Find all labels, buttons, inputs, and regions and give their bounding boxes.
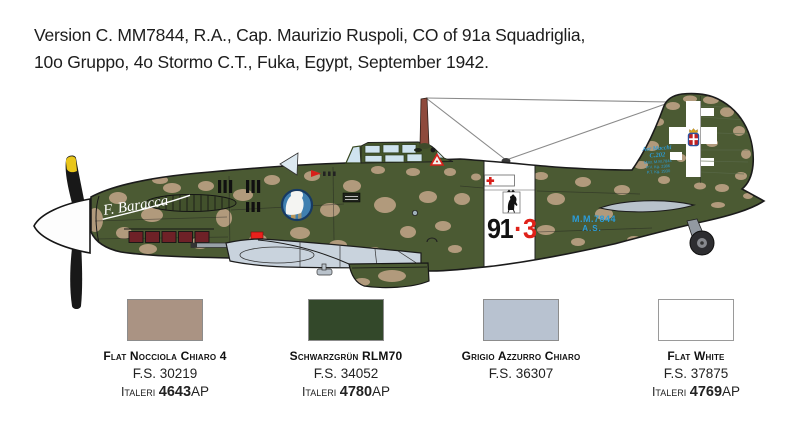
- wing-pylon-stem: [322, 264, 326, 270]
- brand-number: 4780: [340, 384, 372, 400]
- squadron-emblem: [282, 189, 312, 220]
- antenna-wires: [426, 98, 671, 164]
- svg-text:91·3: 91·3: [487, 213, 536, 245]
- swatch-color-white: [658, 299, 734, 341]
- fs-code: F.S. 36307: [436, 366, 606, 381]
- fs-code: F.S. 37875: [611, 366, 781, 381]
- code-separator: ·: [514, 213, 521, 245]
- brand-suffix: AP: [722, 384, 740, 399]
- exhaust-stacks: [129, 232, 209, 243]
- prancing-horse-plaque: [503, 190, 520, 214]
- fs-code: F.S. 30219: [80, 366, 250, 381]
- brand-label: Italeri: [652, 385, 686, 399]
- fs-code: F.S. 34052: [261, 366, 431, 381]
- swatch-color-nocciola: [127, 299, 203, 341]
- wing-root-light: [251, 232, 263, 239]
- brand-code: Italeri 4769AP: [611, 384, 781, 400]
- brand-label: Italeri: [302, 385, 336, 399]
- data-plate-line: [345, 199, 358, 200]
- antenna-mast: [419, 98, 431, 149]
- fuselage-code: 91·3: [487, 213, 536, 245]
- paint-swatch-grigio: Grigio Azzurro Chiaro F.S. 36307: [436, 299, 606, 384]
- spinner: [34, 199, 90, 253]
- tail-wheel: [687, 219, 714, 255]
- no-step-dashes: [323, 172, 336, 177]
- brand-number: 4769: [690, 384, 722, 400]
- paint-swatch-white: Flat White F.S. 37875 Italeri 4769AP: [611, 299, 781, 400]
- brand-number: 4643: [159, 384, 191, 400]
- windscreen: [346, 146, 361, 163]
- swatch-color-schwarzgrun: [308, 299, 384, 341]
- data-plate-line: [345, 196, 358, 197]
- radiator: [345, 260, 435, 292]
- data-plate: [343, 193, 360, 202]
- red-cross-h: [487, 179, 495, 182]
- savoy-crest: [689, 129, 699, 146]
- code-squadron: 91: [487, 213, 514, 245]
- brand-suffix: AP: [372, 384, 390, 399]
- code-individual: 3: [523, 213, 536, 245]
- brand-suffix: AP: [191, 384, 209, 399]
- paint-name: Grigio Azzurro Chiaro: [436, 349, 606, 363]
- footstep: [412, 210, 417, 215]
- paint-name: Flat White: [611, 349, 781, 363]
- paint-name: Schwarzgrün RLM70: [261, 349, 431, 363]
- brand-code: Italeri 4780AP: [261, 384, 431, 400]
- propeller-tip-yellow: [66, 156, 77, 172]
- paint-swatch-schwarzgrun: Schwarzgrün RLM70 F.S. 34052 Italeri 478…: [261, 299, 431, 400]
- gun-muzzle: [191, 243, 197, 248]
- headrest: [414, 148, 422, 152]
- brand-code: Italeri 4643AP: [80, 384, 250, 400]
- paint-name: Flat Nocciola Chiaro 4: [80, 349, 250, 363]
- serial-line-2: A.S.: [582, 224, 602, 233]
- paint-swatch-nocciola: Flat Nocciola Chiaro 4 F.S. 30219 Italer…: [80, 299, 250, 400]
- serial-line-1: M.M.7844: [572, 214, 616, 224]
- fuel-filler-dot: [431, 148, 436, 153]
- brand-label: Italeri: [121, 385, 155, 399]
- swatch-color-grigio: [483, 299, 559, 341]
- fin-stencil: Aer Macchi C.202 Matr. M.M.7844 P.V. Kg.…: [641, 145, 673, 175]
